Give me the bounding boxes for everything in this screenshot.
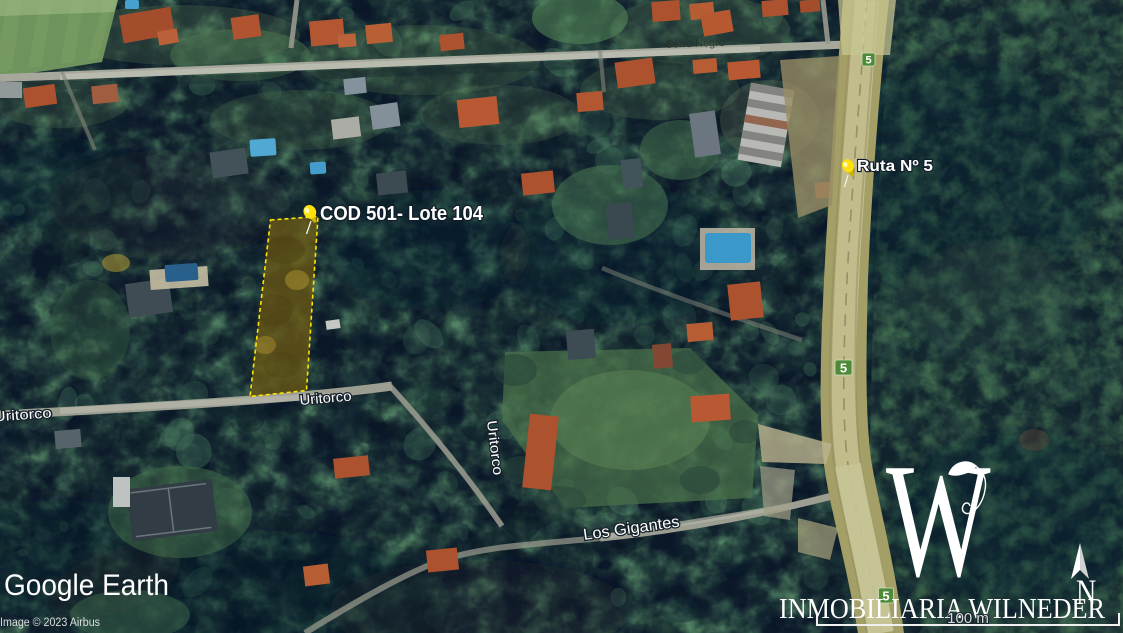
svg-text:Google Earth: Google Earth [4,569,169,602]
svg-text:COD 501- Lote 104: COD 501- Lote 104 [320,203,484,225]
svg-text:5: 5 [865,55,871,67]
svg-text:W: W [886,431,991,611]
svg-text:5: 5 [840,361,847,376]
svg-text:Ruta Nº 5: Ruta Nº 5 [857,158,933,175]
svg-text:INMOBILIARIA WILNEDER: INMOBILIARIA WILNEDER [779,593,1106,625]
svg-text:Image © 2023 Airbus: Image © 2023 Airbus [0,617,100,629]
svg-text:100 m: 100 m [947,610,989,627]
svg-text:N: N [1076,572,1096,612]
svg-text:Cerro Negro: Cerro Negro [665,37,725,51]
